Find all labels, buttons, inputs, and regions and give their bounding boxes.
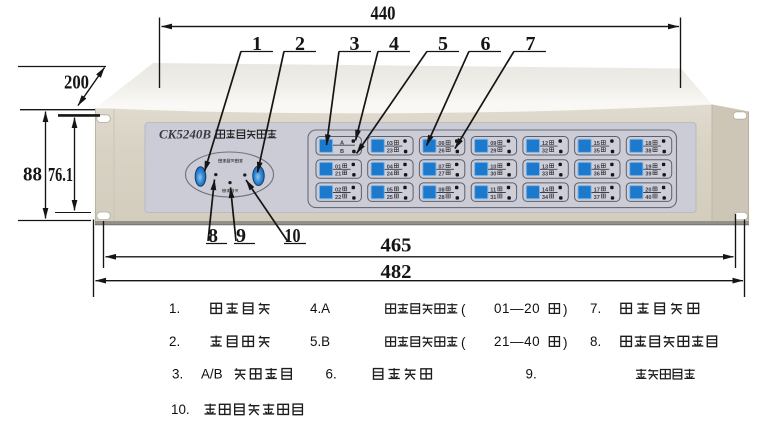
- svg-text:9.: 9.: [526, 367, 537, 382]
- svg-text:76.1: 76.1: [48, 164, 73, 186]
- svg-text:17: 17: [594, 188, 600, 194]
- svg-text:B: B: [340, 149, 344, 155]
- svg-text:27: 27: [438, 172, 444, 178]
- svg-text:39: 39: [645, 172, 651, 178]
- svg-text:): ): [563, 335, 567, 350]
- svg-text:(: (: [461, 335, 466, 350]
- svg-text:35: 35: [594, 148, 600, 154]
- svg-text:05: 05: [387, 188, 393, 194]
- svg-text:88: 88: [23, 164, 42, 186]
- svg-text:15: 15: [594, 141, 600, 147]
- svg-text:A/B: A/B: [201, 367, 223, 382]
- svg-text:): ): [563, 302, 567, 317]
- svg-text:07: 07: [438, 164, 444, 170]
- svg-text:21: 21: [335, 172, 341, 178]
- svg-text:CK5240B: CK5240B: [159, 127, 211, 142]
- svg-text:1.: 1.: [169, 301, 180, 316]
- svg-text:10: 10: [490, 164, 496, 170]
- svg-text:33: 33: [542, 172, 548, 178]
- svg-text:2.: 2.: [169, 334, 180, 349]
- svg-text:440: 440: [371, 3, 396, 25]
- svg-text:4.A: 4.A: [310, 301, 330, 316]
- svg-text:36: 36: [594, 172, 600, 178]
- svg-text:7.: 7.: [590, 301, 601, 316]
- svg-text:01—20: 01—20: [494, 301, 540, 316]
- svg-text:465: 465: [381, 235, 412, 257]
- svg-text:21—40: 21—40: [494, 334, 540, 349]
- svg-text:24: 24: [387, 172, 394, 178]
- svg-text:26: 26: [438, 148, 444, 154]
- svg-text:29: 29: [490, 148, 496, 154]
- svg-text:23: 23: [387, 148, 393, 154]
- svg-text:11: 11: [490, 188, 496, 194]
- svg-text:31: 31: [490, 195, 496, 201]
- svg-text:28: 28: [438, 195, 444, 201]
- svg-text:03: 03: [387, 141, 393, 147]
- svg-text:20: 20: [645, 188, 651, 194]
- svg-text:A: A: [340, 141, 344, 147]
- svg-text:200: 200: [64, 72, 89, 94]
- svg-text:25: 25: [387, 195, 393, 201]
- svg-text:04: 04: [387, 164, 394, 170]
- svg-text:482: 482: [381, 261, 412, 283]
- svg-text:5.B: 5.B: [310, 334, 330, 349]
- svg-text:12: 12: [542, 141, 548, 147]
- svg-text:19: 19: [645, 164, 651, 170]
- svg-text:40: 40: [645, 195, 651, 201]
- svg-text:8.: 8.: [590, 334, 601, 349]
- svg-text:37: 37: [594, 195, 600, 201]
- svg-text:16: 16: [594, 164, 600, 170]
- svg-text:30: 30: [490, 172, 496, 178]
- svg-text:06: 06: [438, 141, 444, 147]
- svg-text:32: 32: [542, 148, 548, 154]
- svg-text:02: 02: [335, 188, 341, 194]
- svg-text:14: 14: [542, 188, 549, 194]
- svg-text:13: 13: [542, 164, 548, 170]
- svg-text:18: 18: [645, 141, 651, 147]
- svg-text:22: 22: [335, 195, 341, 201]
- svg-text:6.: 6.: [326, 367, 337, 382]
- svg-text:10.: 10.: [171, 402, 190, 417]
- svg-text:01: 01: [335, 164, 341, 170]
- svg-text:38: 38: [645, 148, 651, 154]
- svg-text:08: 08: [438, 188, 444, 194]
- svg-text:09: 09: [490, 141, 496, 147]
- svg-text:(: (: [461, 302, 466, 317]
- svg-text:3.: 3.: [172, 367, 183, 382]
- svg-text:34: 34: [542, 195, 549, 201]
